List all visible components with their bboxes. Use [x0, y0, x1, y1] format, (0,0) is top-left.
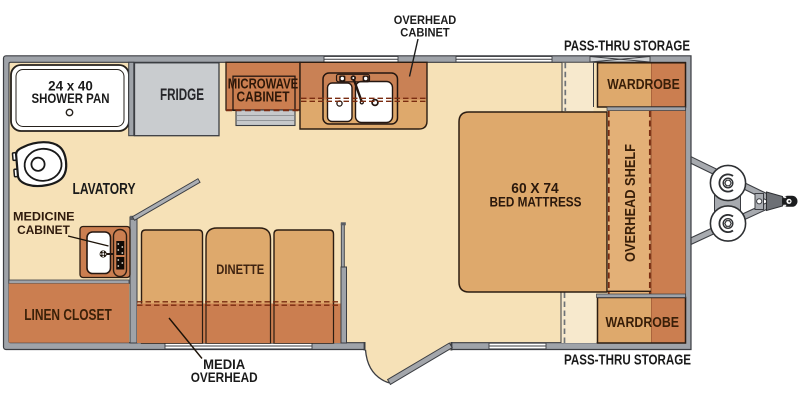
svg-text:LAVATORY: LAVATORY [73, 181, 137, 198]
svg-text:BED MATTRESS: BED MATTRESS [490, 194, 582, 209]
svg-text:OVERHEAD: OVERHEAD [191, 369, 258, 385]
svg-text:OVERHEAD SHELF: OVERHEAD SHELF [622, 144, 639, 262]
svg-text:CABINET: CABINET [17, 224, 71, 237]
svg-text:DINETTE: DINETTE [216, 262, 264, 277]
svg-text:CABINET: CABINET [237, 90, 290, 106]
svg-text:LINEN CLOSET: LINEN CLOSET [24, 307, 112, 324]
svg-text:SHOWER PAN: SHOWER PAN [32, 90, 110, 106]
svg-text:PASS-THRU STORAGE: PASS-THRU STORAGE [564, 39, 690, 55]
svg-text:WARDROBE: WARDROBE [606, 315, 680, 331]
svg-text:MEDICINE: MEDICINE [13, 211, 75, 224]
svg-text:PASS-THRU STORAGE: PASS-THRU STORAGE [564, 353, 691, 369]
svg-text:CABINET: CABINET [400, 26, 450, 40]
svg-text:WARDROBE: WARDROBE [607, 77, 680, 93]
svg-text:FRIDGE: FRIDGE [160, 85, 204, 104]
